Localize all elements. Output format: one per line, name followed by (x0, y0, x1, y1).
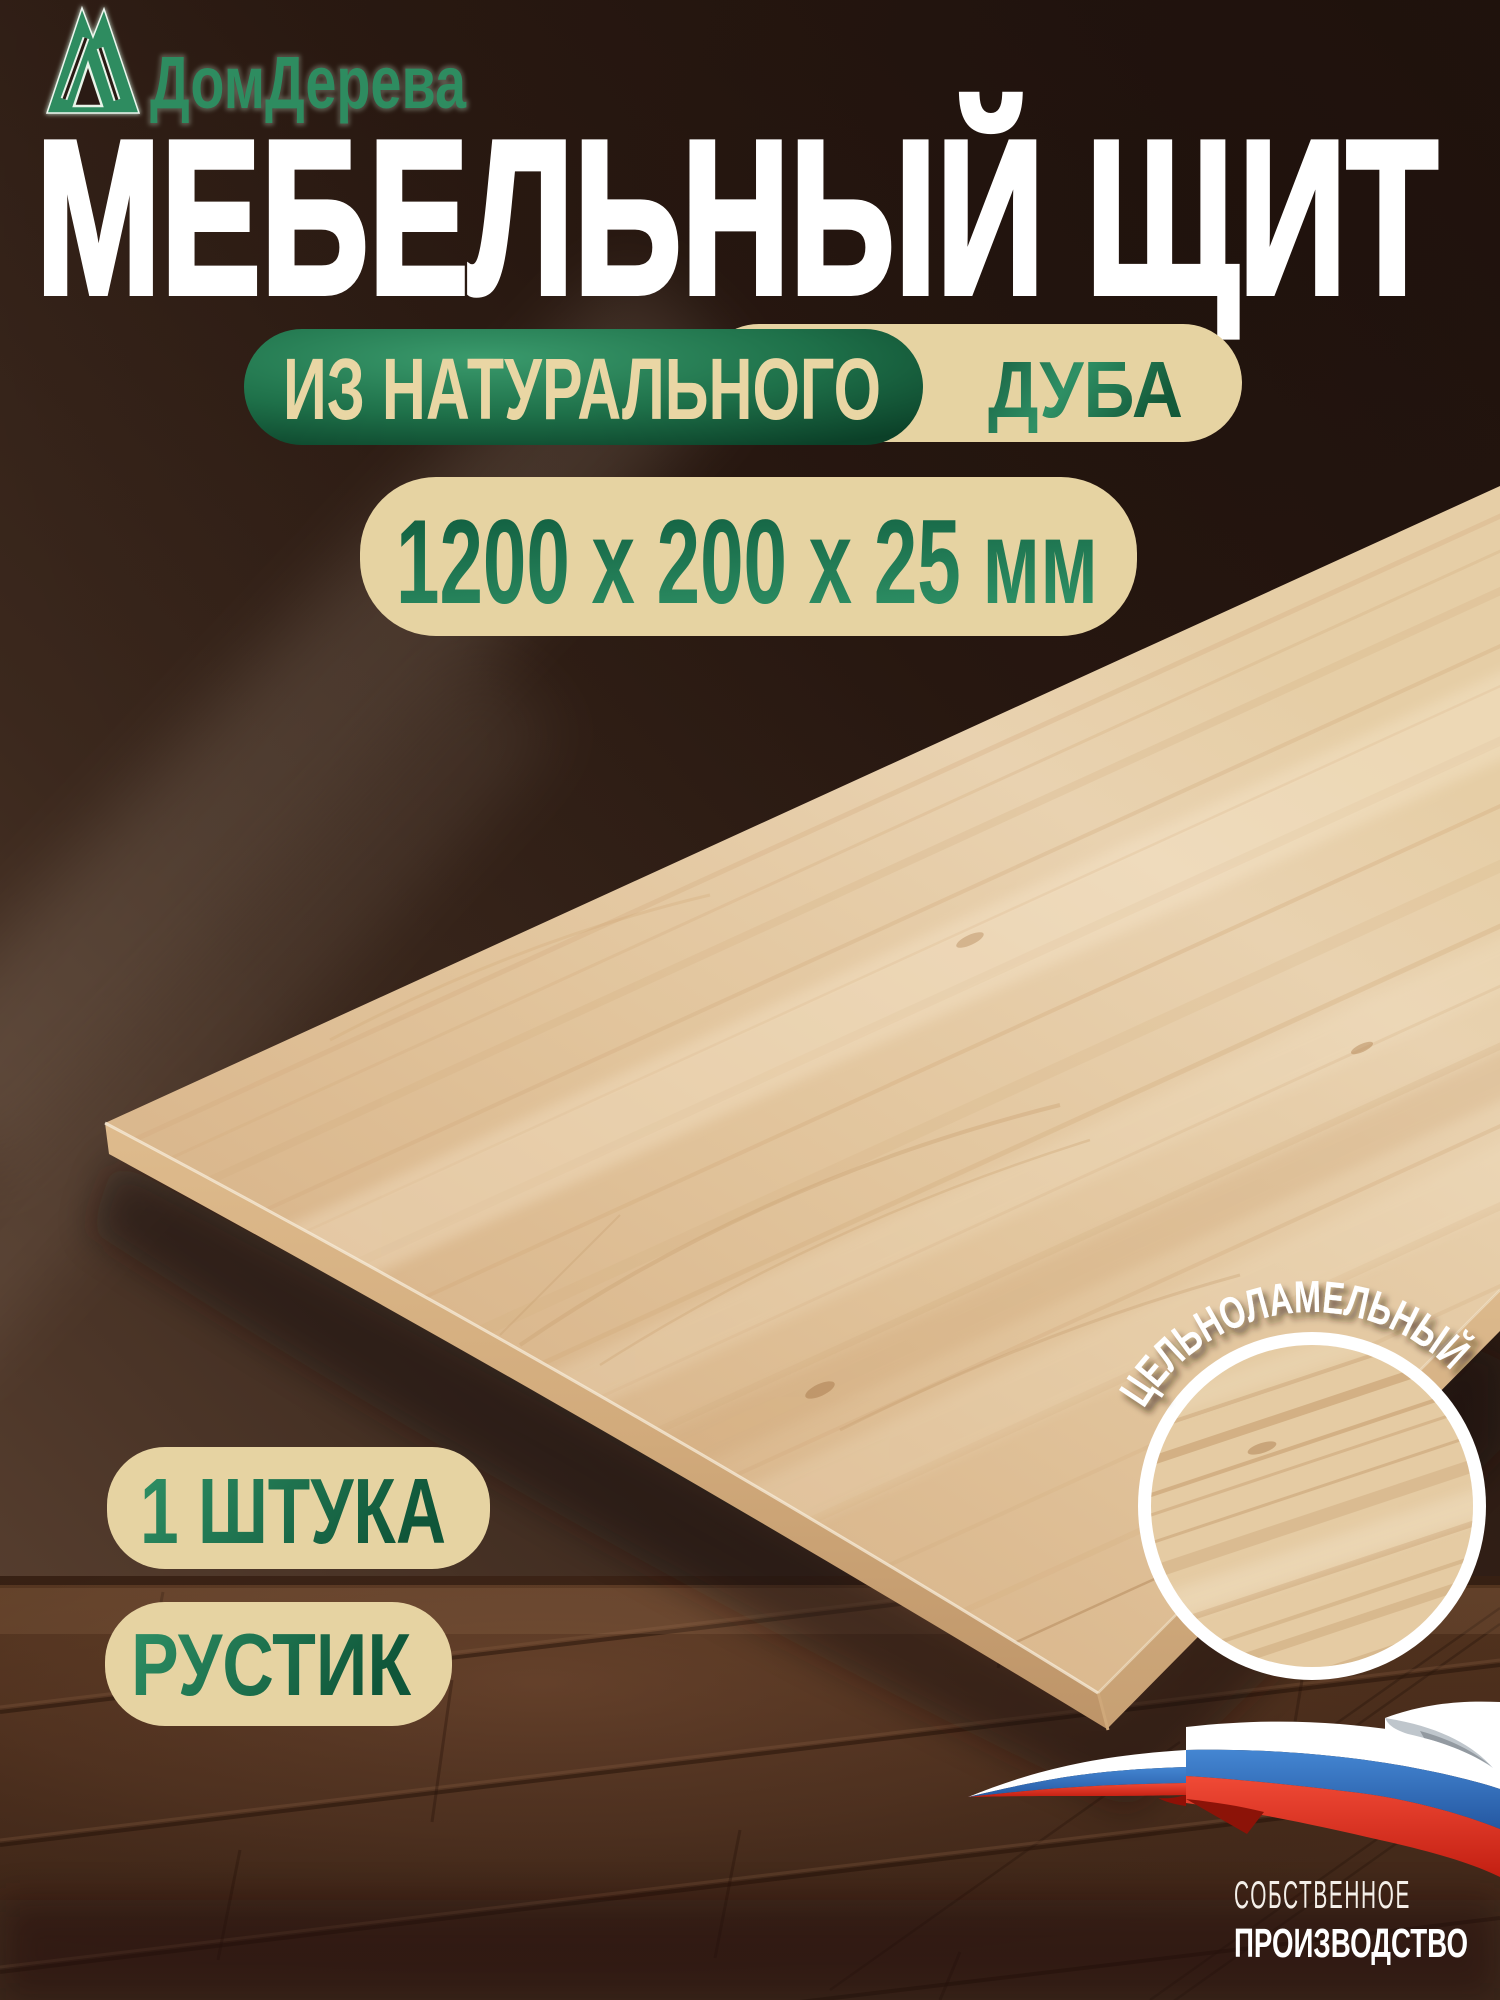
svg-text:МЕБЕЛЬНЫЙ ЩИТ: МЕБЕЛЬНЫЙ ЩИТ (36, 94, 1438, 340)
svg-text:1200 х 200 х 25 мм: 1200 х 200 х 25 мм (396, 495, 1098, 629)
svg-text:СОБСТВЕННОЕ: СОБСТВЕННОЕ (1234, 1874, 1411, 1917)
svg-text:1 ШТУКА: 1 ШТУКА (140, 1459, 446, 1563)
svg-text:РУСТИК: РУСТИК (131, 1615, 411, 1714)
svg-text:ПРОИЗВОДСТВО: ПРОИЗВОДСТВО (1234, 1920, 1468, 1966)
svg-text:ИЗ НАТУРАЛЬНОГО: ИЗ НАТУРАЛЬНОГО (283, 341, 881, 438)
svg-text:ДУБА: ДУБА (988, 345, 1183, 434)
